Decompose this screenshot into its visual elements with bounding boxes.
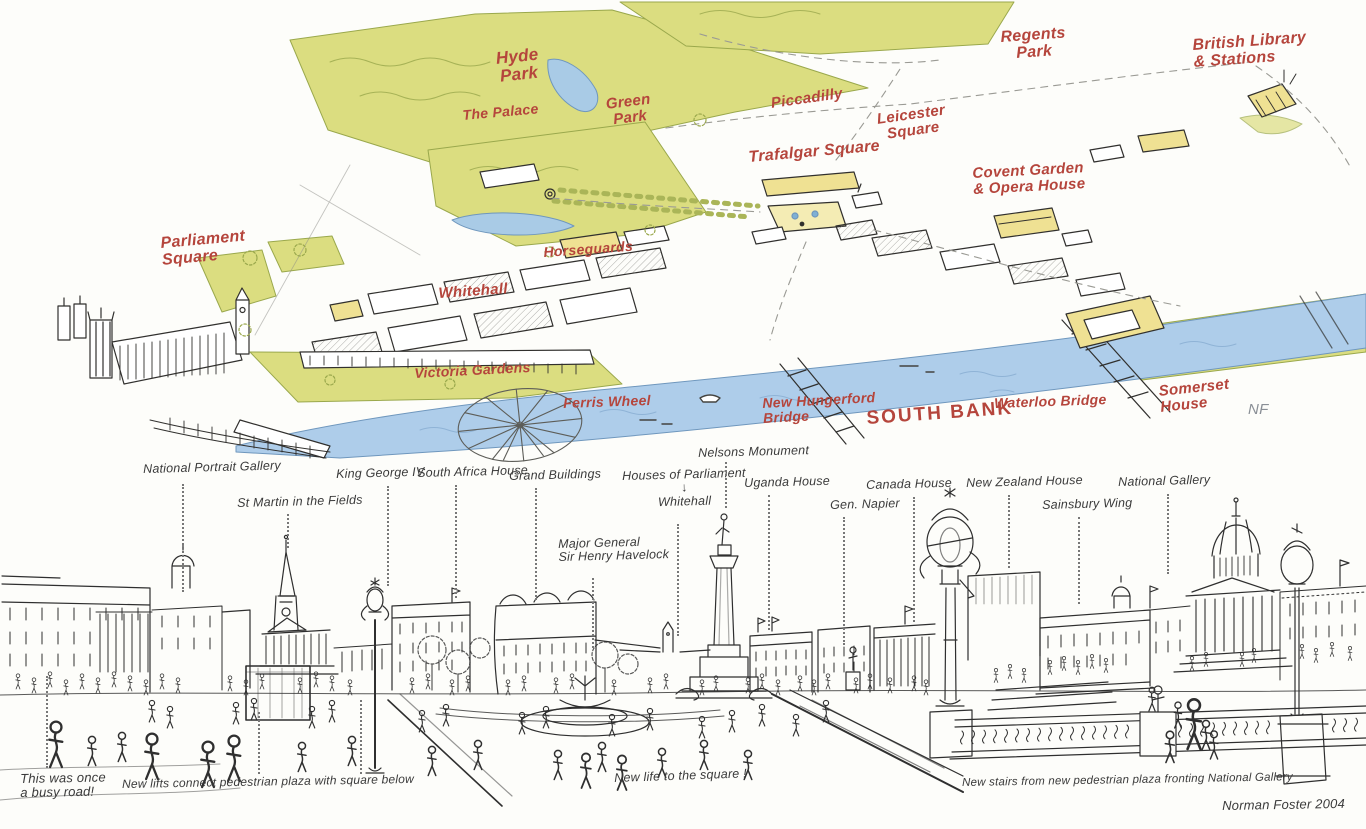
once-a-busy-road-leader-line — [46, 676, 48, 768]
label-new-lifts: New lifts connect pedestrian plaza with … — [122, 773, 414, 791]
label-artist-signature: Norman Foster 2004 — [1222, 797, 1345, 813]
label-once-a-busy-road: This was oncea busy road! — [20, 771, 106, 800]
new-lifts-leader-line — [360, 700, 362, 774]
label-new-life: New life to the square ! — [614, 767, 747, 785]
new-lifts-leader-line — [258, 712, 260, 774]
label-new-stairs: New stairs from new pedestrian plaza fro… — [962, 771, 1293, 789]
panorama-annotations-layer: This was oncea busy road!New lifts conne… — [0, 0, 1366, 829]
foster-sketch-canvas: HydeParkThe PalaceGreenParkPiccadillyLei… — [0, 0, 1366, 829]
